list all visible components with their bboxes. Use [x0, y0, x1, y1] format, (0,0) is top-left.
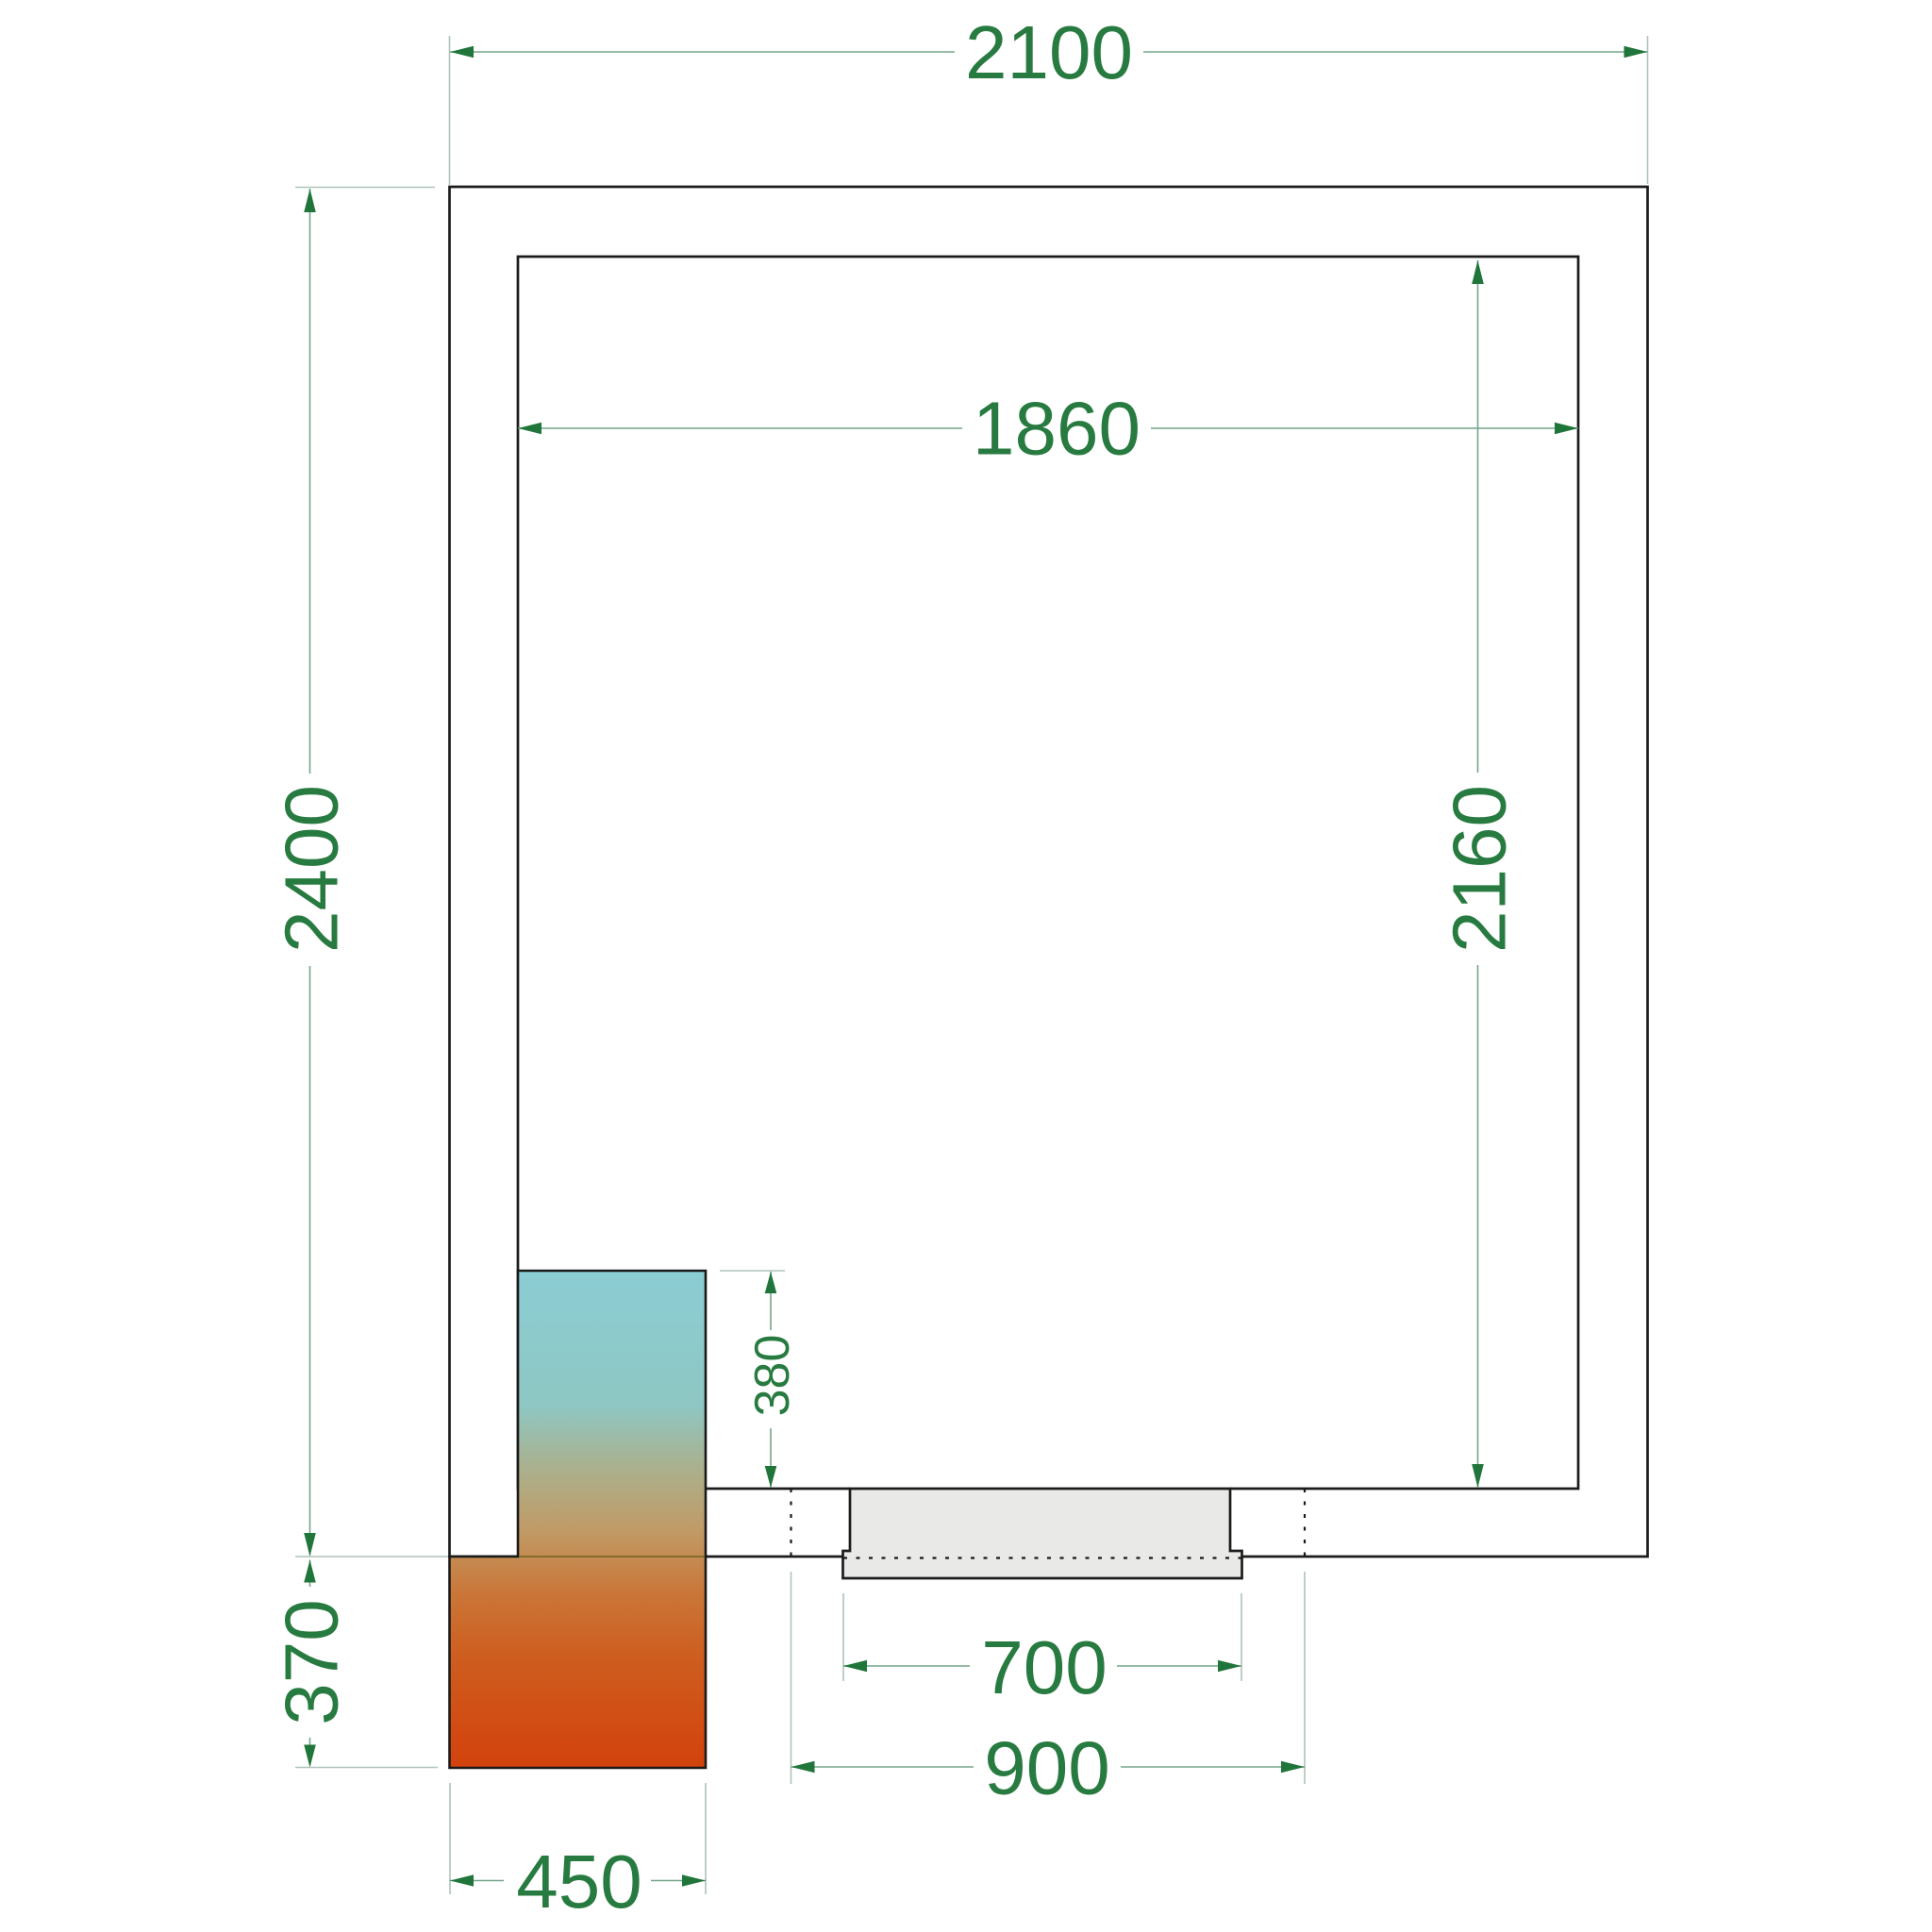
svg-text:2400: 2400 [270, 785, 354, 953]
svg-text:370: 370 [270, 1599, 354, 1724]
svg-text:2100: 2100 [965, 10, 1133, 94]
svg-text:450: 450 [516, 1840, 641, 1924]
svg-text:2160: 2160 [1438, 785, 1522, 953]
svg-text:380: 380 [745, 1335, 800, 1417]
svg-text:900: 900 [984, 1726, 1109, 1810]
svg-text:700: 700 [981, 1625, 1107, 1709]
svg-text:1860: 1860 [973, 387, 1141, 471]
